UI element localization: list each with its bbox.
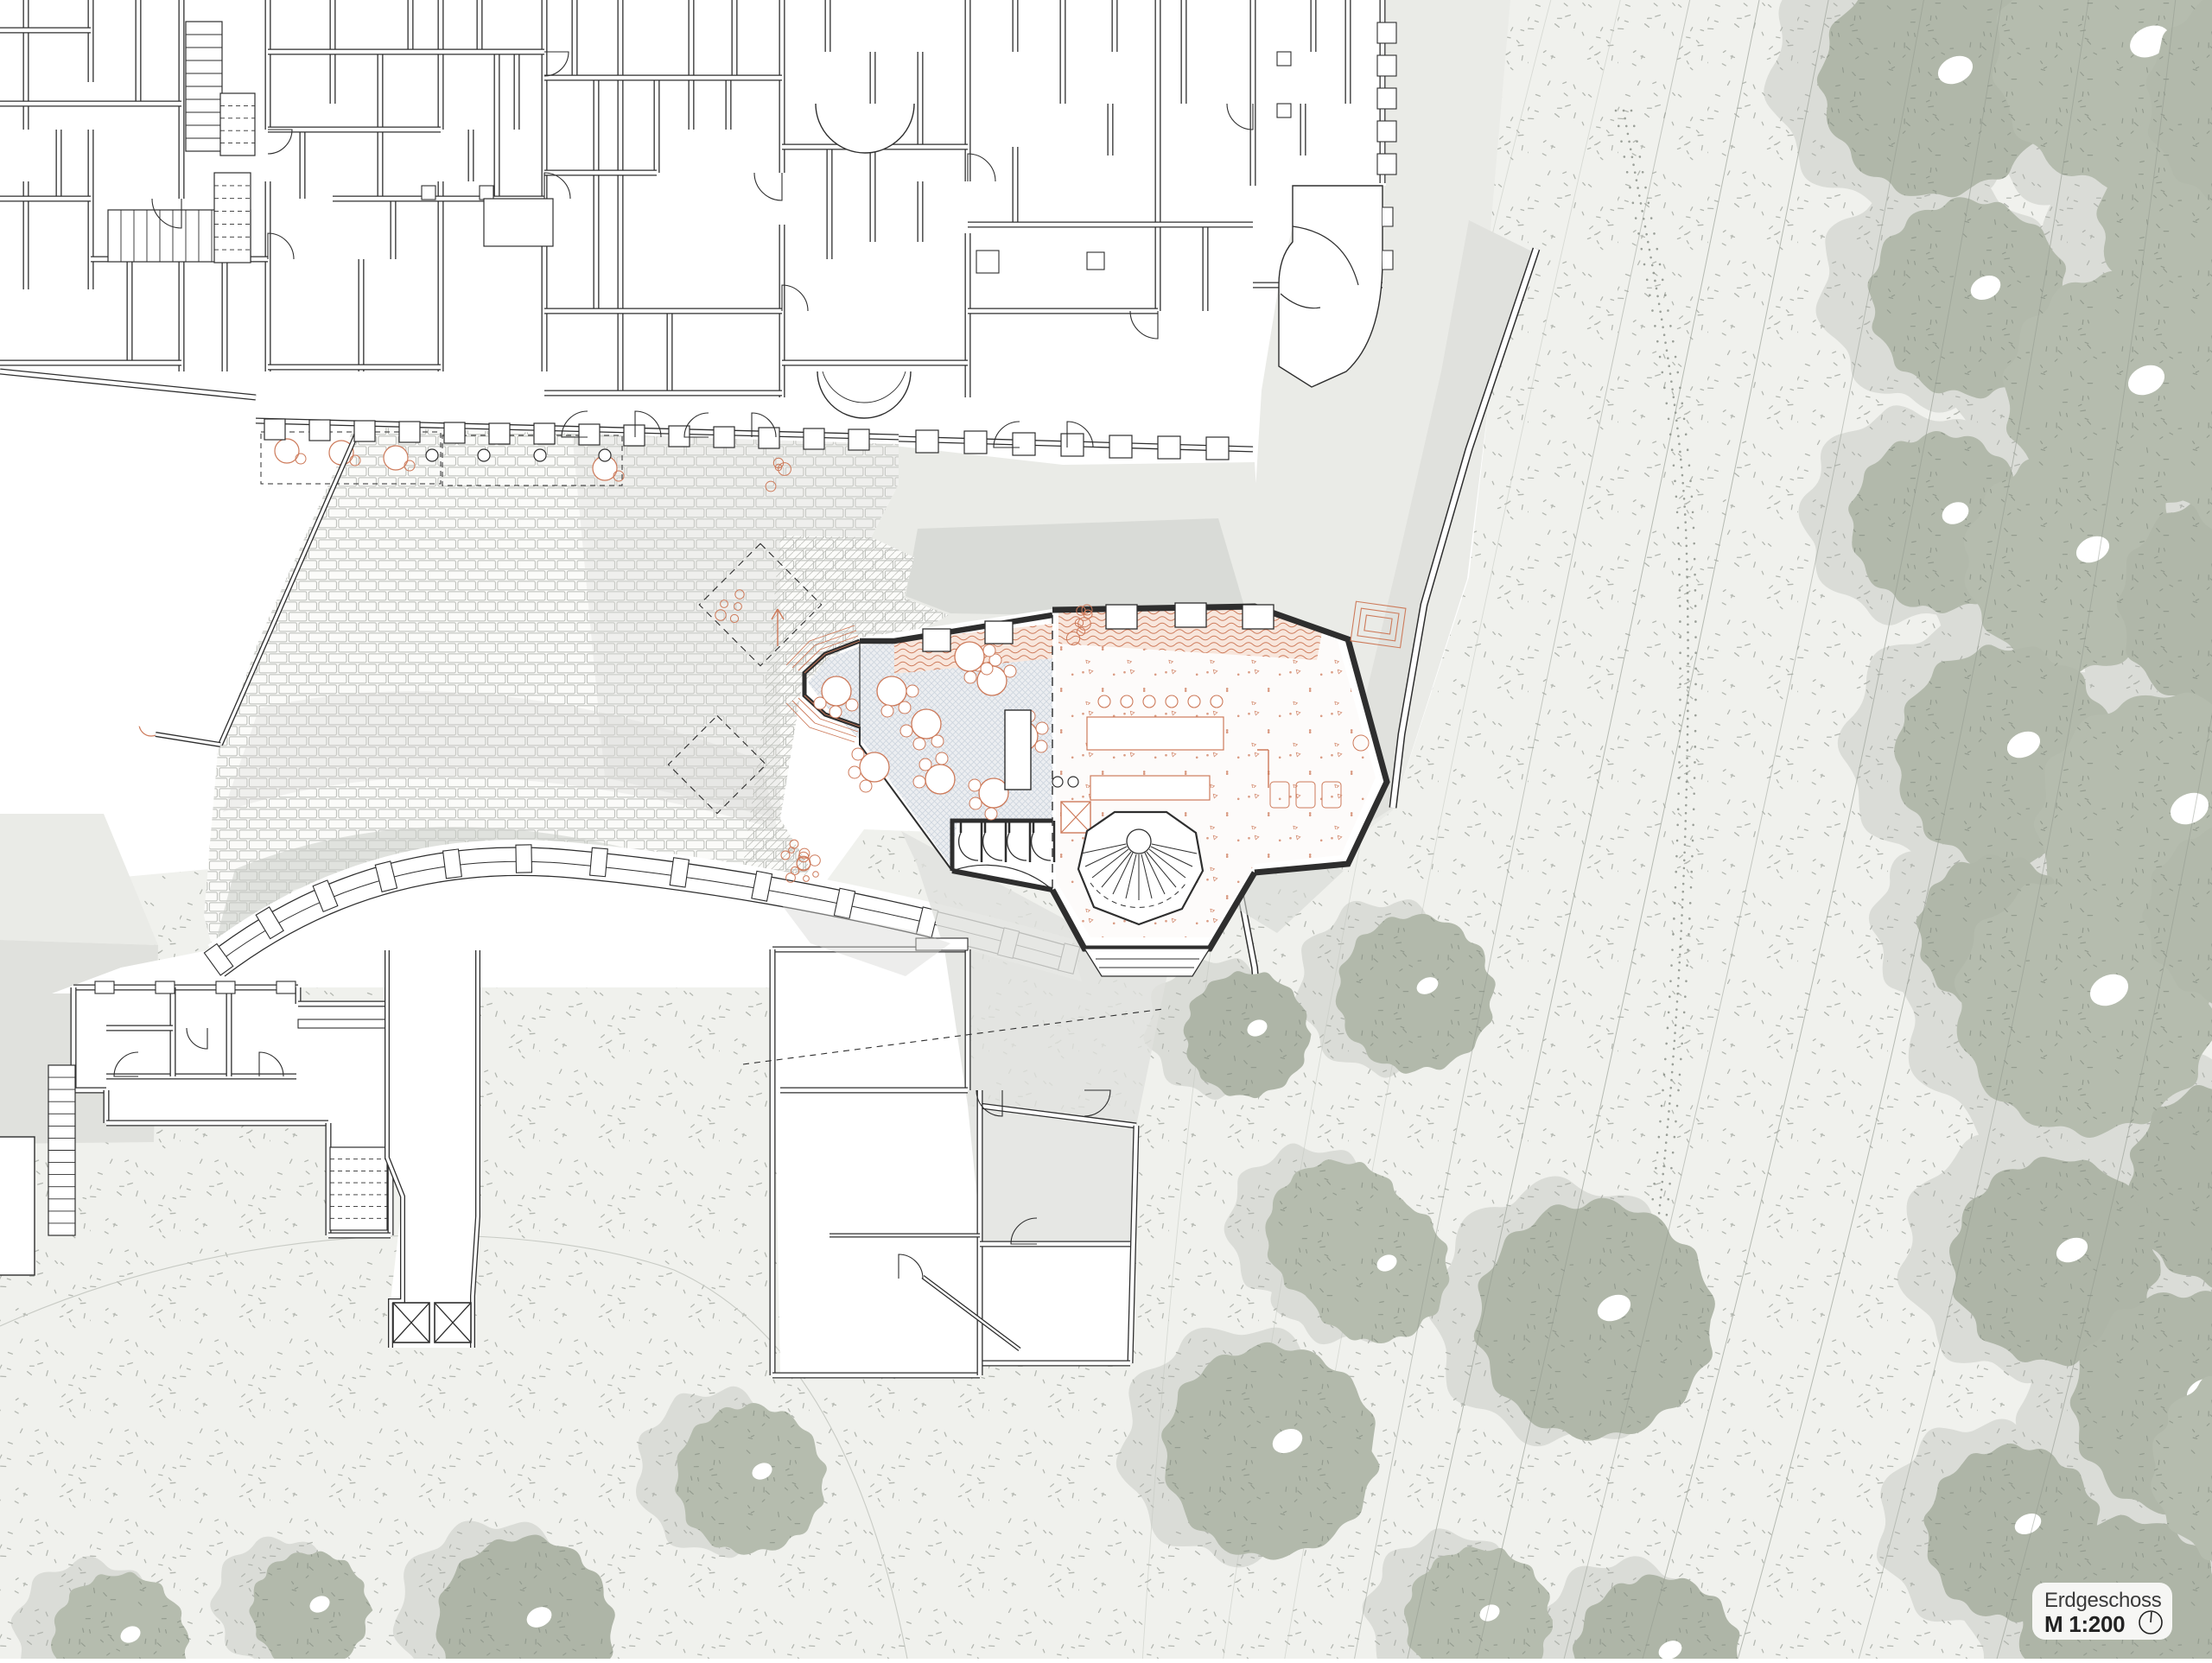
svg-text:M 1:200: M 1:200 <box>2044 1611 2125 1637</box>
svg-text:Erdgeschoss: Erdgeschoss <box>2044 1589 2162 1612</box>
